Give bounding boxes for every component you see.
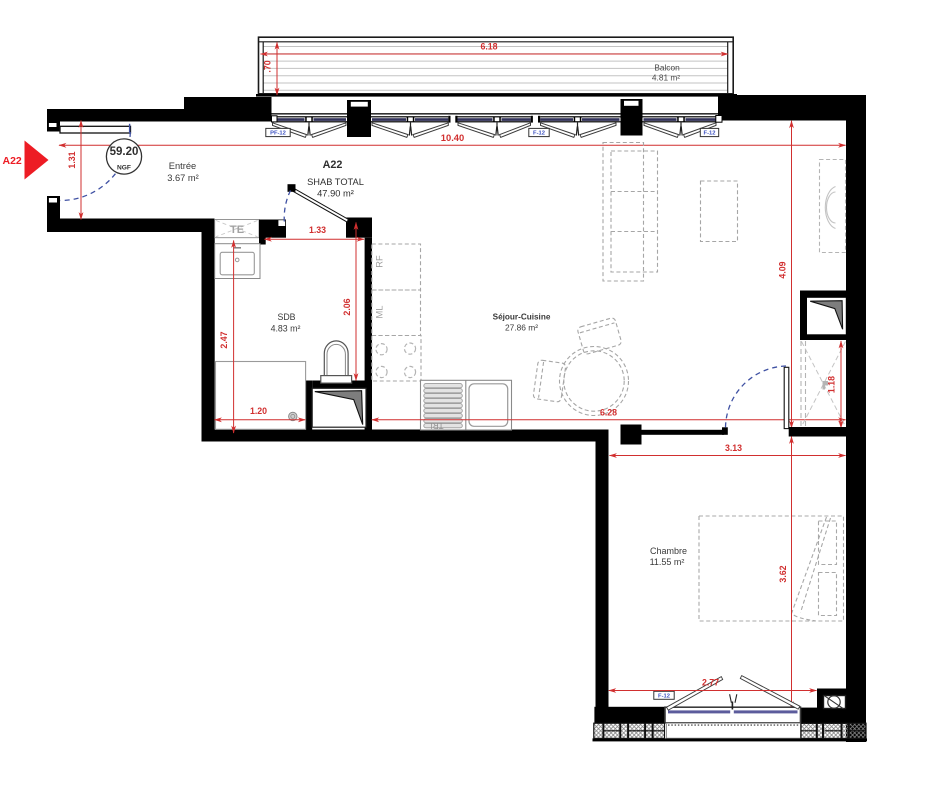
svg-text:NGF: NGF xyxy=(117,165,131,172)
svg-text:11.55 m²: 11.55 m² xyxy=(650,557,685,567)
svg-text:4.09: 4.09 xyxy=(778,261,788,278)
svg-text:A22: A22 xyxy=(323,159,343,171)
svg-text:SHAB TOTAL: SHAB TOTAL xyxy=(307,177,364,187)
svg-text:1.18: 1.18 xyxy=(827,376,837,393)
svg-text:F-12: F-12 xyxy=(533,131,545,137)
svg-text:3.62: 3.62 xyxy=(778,565,788,582)
svg-text:RF: RF xyxy=(375,255,385,268)
svg-text:10.40: 10.40 xyxy=(441,132,464,143)
svg-text:6.28: 6.28 xyxy=(600,408,617,418)
svg-text:4.81 m²: 4.81 m² xyxy=(652,73,680,83)
svg-text:Entrée: Entrée xyxy=(169,161,196,171)
svg-text:6.18: 6.18 xyxy=(480,42,497,52)
svg-text:Balcon: Balcon xyxy=(654,63,680,73)
svg-text:2.47: 2.47 xyxy=(219,331,229,348)
svg-text:2.06: 2.06 xyxy=(342,298,352,315)
svg-text:A22: A22 xyxy=(3,155,22,167)
svg-text:1.31: 1.31 xyxy=(67,151,77,168)
svg-text:TE: TE xyxy=(230,224,244,236)
svg-text:59.20: 59.20 xyxy=(110,146,139,158)
svg-text:1.33: 1.33 xyxy=(309,225,326,235)
svg-text:47.90 m²: 47.90 m² xyxy=(317,189,354,199)
svg-text:F-12: F-12 xyxy=(658,693,670,699)
svg-text:F-12: F-12 xyxy=(704,131,716,137)
svg-text:3.67 m²: 3.67 m² xyxy=(167,173,199,183)
svg-text:SDB: SDB xyxy=(277,312,295,322)
svg-text:.70: .70 xyxy=(263,60,273,72)
svg-text:Chambre: Chambre xyxy=(650,546,687,556)
svg-text:4.83 m²: 4.83 m² xyxy=(271,324,301,334)
svg-text:PF-12: PF-12 xyxy=(270,131,286,137)
svg-text:2.77: 2.77 xyxy=(702,678,719,688)
svg-text:27.86 m²: 27.86 m² xyxy=(505,323,538,333)
svg-text:TRI: TRI xyxy=(431,421,444,430)
svg-text:1.20: 1.20 xyxy=(250,406,267,416)
svg-text:Séjour-Cuisine: Séjour-Cuisine xyxy=(493,313,551,322)
svg-text:3.13: 3.13 xyxy=(725,443,742,453)
svg-text:ML: ML xyxy=(375,306,385,319)
